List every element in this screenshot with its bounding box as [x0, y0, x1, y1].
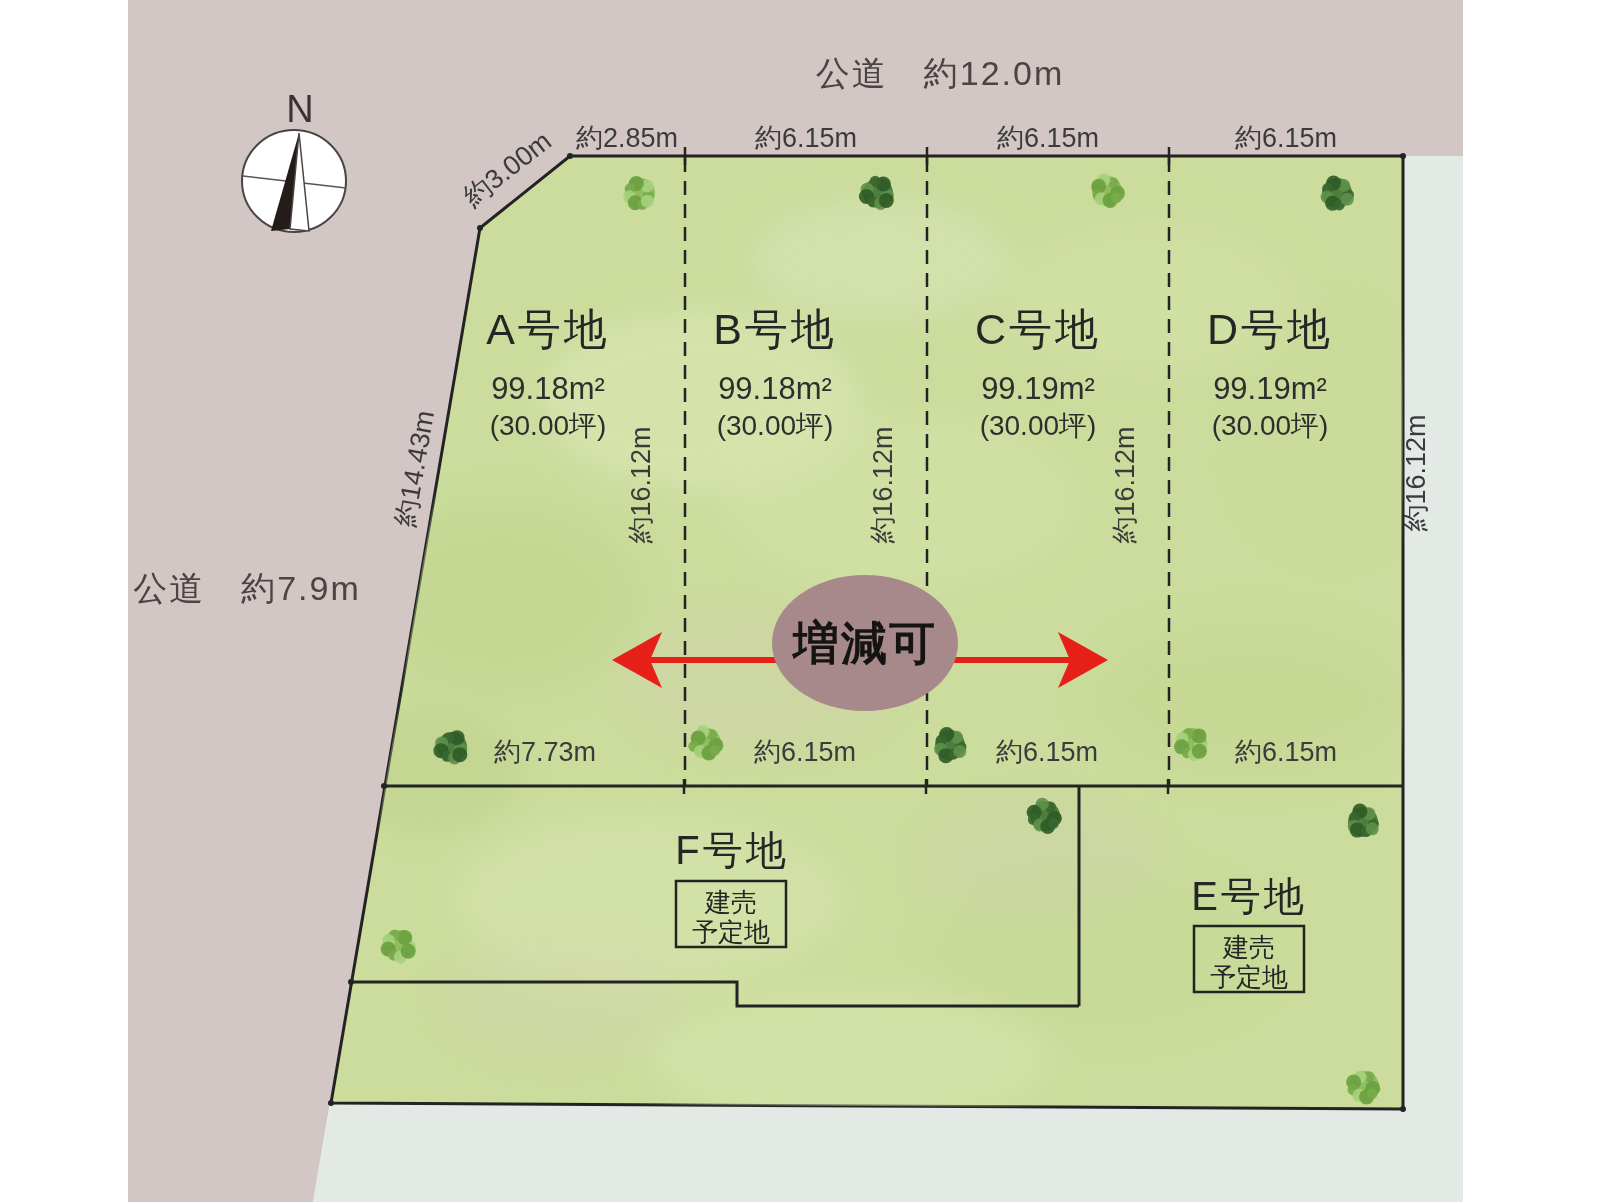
dim-top-3: 約6.15m [997, 123, 1099, 153]
plot-f-note-line1: 建売 [704, 887, 757, 917]
plot-a: A号地 99.18m² (30.00坪) [486, 305, 610, 441]
dim-bottom-4: 約6.15m [1235, 737, 1337, 767]
dim-bottom-1: 約7.73m [494, 737, 596, 767]
plot-a-tsubo: (30.00坪) [490, 410, 607, 441]
plot-b-label: B号地 [713, 305, 837, 353]
plot-b-area: 99.18m² [718, 371, 832, 406]
plot-a-label: A号地 [486, 305, 610, 353]
plot-e-label: E号地 [1191, 874, 1307, 918]
plot-e-note-line1: 建売 [1222, 932, 1275, 962]
dim-depth-4: 約16.12m [1401, 414, 1431, 531]
dim-top-4: 約6.15m [1235, 123, 1337, 153]
dim-depth-2: 約16.12m [868, 426, 898, 543]
plot-f-label: F号地 [675, 828, 788, 872]
plot-b: B号地 99.18m² (30.00坪) [713, 305, 837, 441]
plot-d-area: 99.19m² [1213, 371, 1327, 406]
plot-c: C号地 99.19m² (30.00坪) [975, 305, 1101, 441]
compass-north-label: N [286, 88, 313, 130]
plot-c-area: 99.19m² [981, 371, 1095, 406]
site-plan-drawing: 増減可 N 公道 約12.0m 公道 約7.9m 約2.85m 約6.15m 約… [0, 0, 1600, 1202]
plot-e-note-line2: 予定地 [1210, 962, 1288, 992]
plot-b-tsubo: (30.00坪) [717, 410, 834, 441]
plot-d-label: D号地 [1207, 305, 1333, 353]
dim-top-2: 約6.15m [755, 123, 857, 153]
dim-bottom-2: 約6.15m [754, 737, 856, 767]
dim-depth-3: 約16.12m [1110, 426, 1140, 543]
plot-f-note-line2: 予定地 [692, 917, 770, 947]
plot-c-tsubo: (30.00坪) [980, 410, 1097, 441]
plot-a-area: 99.18m² [491, 371, 605, 406]
road-top-label: 公道 約12.0m [816, 54, 1065, 92]
road-left-label: 公道 約7.9m [133, 569, 361, 607]
dim-bottom-3: 約6.15m [996, 737, 1098, 767]
plot-c-label: C号地 [975, 305, 1101, 353]
site-plan-page: 増減可 N 公道 約12.0m 公道 約7.9m 約2.85m 約6.15m 約… [0, 0, 1600, 1202]
dim-top-1: 約2.85m [576, 123, 678, 153]
adjustable-label: 増減可 [791, 617, 937, 669]
dim-depth-1: 約16.12m [626, 426, 656, 543]
plot-d: D号地 99.19m² (30.00坪) [1207, 305, 1333, 441]
plot-d-tsubo: (30.00坪) [1212, 410, 1329, 441]
